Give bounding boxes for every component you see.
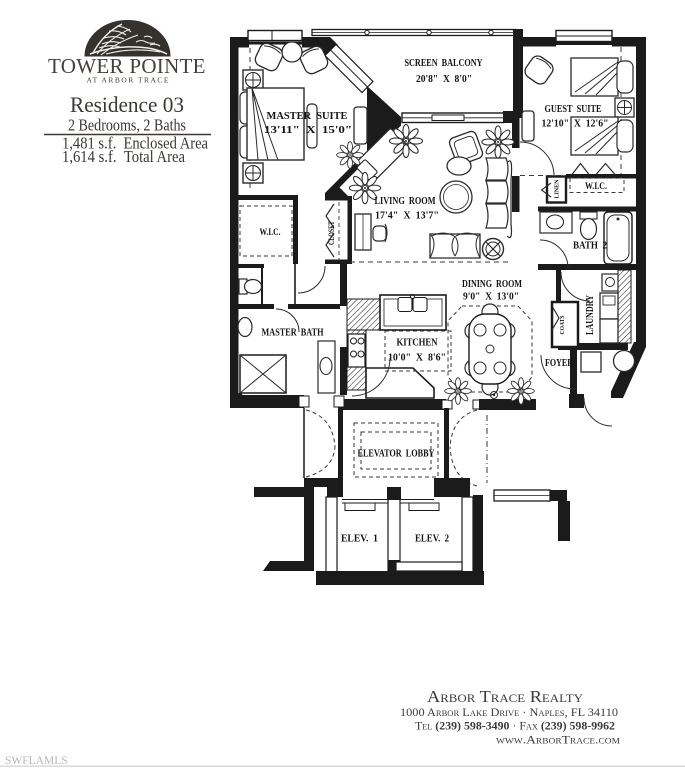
svg-text:12'10" X 12'6": 12'10" X 12'6" bbox=[542, 118, 609, 130]
svg-text:1000 Arbor Lake Drive · Naples: 1000 Arbor Lake Drive · Naples, FL 34110 bbox=[400, 707, 618, 719]
svg-text:www.ArborTrace.com: www.ArborTrace.com bbox=[496, 735, 620, 747]
svg-text:DINING ROOM: DINING ROOM bbox=[462, 278, 522, 290]
svg-text:FOYER: FOYER bbox=[545, 358, 573, 369]
svg-text:W.I.C.: W.I.C. bbox=[260, 228, 281, 238]
svg-text:13'11" X 15'0": 13'11" X 15'0" bbox=[264, 124, 352, 136]
svg-text:MASTER BATH: MASTER BATH bbox=[262, 328, 324, 339]
svg-text:1,614 s.f. Total Area: 1,614 s.f. Total Area bbox=[62, 147, 186, 166]
svg-text:Arbor Trace Realty: Arbor Trace Realty bbox=[427, 687, 583, 706]
svg-text:17'4" X 13'7": 17'4" X 13'7" bbox=[375, 210, 439, 222]
svg-text:CLOSET: CLOSET bbox=[327, 221, 336, 245]
svg-text:W.I.C.: W.I.C. bbox=[585, 181, 607, 191]
svg-text:GUEST SUITE: GUEST SUITE bbox=[545, 103, 602, 115]
svg-text:ELEV. 2: ELEV. 2 bbox=[415, 534, 449, 545]
svg-text:10'0" X 8'6": 10'0" X 8'6" bbox=[388, 352, 446, 364]
svg-text:Residence 03: Residence 03 bbox=[70, 92, 184, 117]
svg-text:20'8" X 8'0": 20'8" X 8'0" bbox=[416, 73, 472, 85]
svg-text:2 Bedrooms, 2 Baths: 2 Bedrooms, 2 Baths bbox=[68, 116, 186, 135]
svg-text:LAUNDRY: LAUNDRY bbox=[585, 295, 596, 335]
svg-text:LIVING ROOM: LIVING ROOM bbox=[375, 195, 436, 207]
svg-text:BATH 2: BATH 2 bbox=[573, 240, 607, 252]
svg-text:KITCHEN: KITCHEN bbox=[397, 337, 438, 349]
svg-text:AT ARBOR TRACE: AT ARBOR TRACE bbox=[87, 76, 172, 85]
svg-text:LINEN: LINEN bbox=[554, 179, 561, 198]
svg-text:ELEVATOR LOBBY: ELEVATOR LOBBY bbox=[358, 449, 435, 460]
svg-text:9'0" X 13'0": 9'0" X 13'0" bbox=[463, 291, 519, 303]
svg-text:TOWER POINTE: TOWER POINTE bbox=[48, 54, 206, 78]
svg-text:ELEV. 1: ELEV. 1 bbox=[341, 534, 378, 545]
svg-text:SCREEN BALCONY: SCREEN BALCONY bbox=[405, 57, 483, 69]
svg-text:SWFLAMLS: SWFLAMLS bbox=[5, 755, 68, 767]
svg-text:COATS: COATS bbox=[559, 315, 566, 334]
svg-text:MASTER SUITE: MASTER SUITE bbox=[267, 110, 348, 122]
svg-text:Tel (239) 598-3490 · Fax (239): Tel (239) 598-3490 · Fax (239) 598-9962 bbox=[415, 721, 615, 733]
